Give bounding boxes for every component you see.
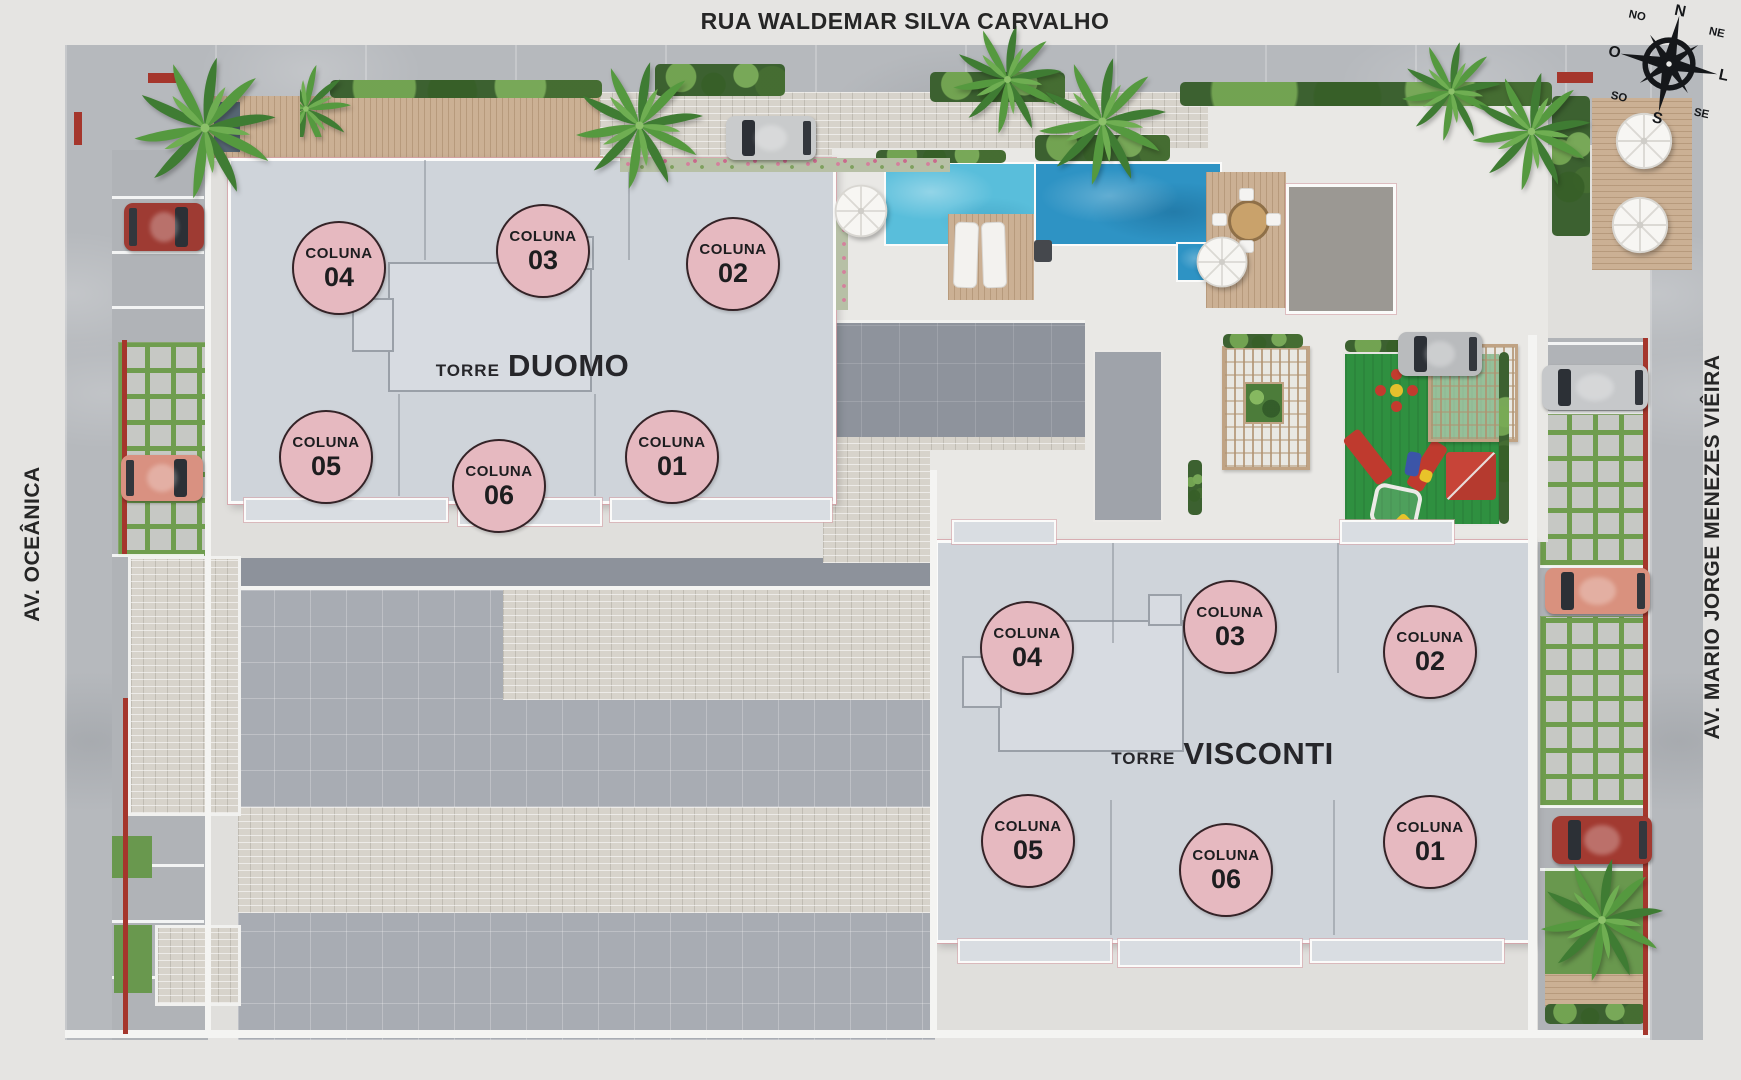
grass-pavers-left xyxy=(118,342,208,556)
visconti-coluna-04: COLUNA 04 xyxy=(980,601,1074,695)
umbrella-pool-icon xyxy=(832,182,890,240)
duomo-coluna-01: COLUNA 01 xyxy=(625,410,719,504)
visconti-core-step xyxy=(1148,594,1182,626)
hedge-right-bottom xyxy=(1545,1004,1645,1024)
duomo-balcony xyxy=(244,498,448,522)
coluna-number: 05 xyxy=(1013,837,1043,864)
site-plan: COLUNA 04 COLUNA 03 COLUNA 02 COLUNA 05 … xyxy=(0,0,1741,1080)
visconti-balcony xyxy=(958,939,1112,963)
visconti-coluna-03: COLUNA 03 xyxy=(1183,580,1277,674)
duomo-coluna-05: COLUNA 05 xyxy=(279,410,373,504)
duomo-coluna-02: COLUNA 02 xyxy=(686,217,780,311)
coluna-label: COLUNA xyxy=(1196,604,1263,621)
parking-stall-line xyxy=(1540,805,1644,808)
dining-chair xyxy=(1212,213,1227,226)
car-red-left xyxy=(124,203,204,251)
visconti-unit-divider xyxy=(1112,543,1114,643)
grass-pavers-right-upper xyxy=(1540,414,1646,566)
green-patch-left-a xyxy=(112,836,152,878)
car-silver-right xyxy=(1542,365,1648,410)
visconti-balcony xyxy=(1310,939,1504,963)
coluna-label: COLUNA xyxy=(994,818,1061,835)
duomo-unit-divider xyxy=(594,394,596,496)
palm-tree-icon xyxy=(1035,54,1170,189)
lot-wall-left xyxy=(205,148,211,1038)
parking-stall-line xyxy=(1540,411,1644,414)
tower-name: VISCONTI xyxy=(1183,736,1333,772)
hedge-playground-right xyxy=(1499,352,1509,524)
street-label-right: AV. MARIO JORGE MENEZES VIÊIRA xyxy=(1701,347,1725,747)
coluna-label: COLUNA xyxy=(993,625,1060,642)
duomo-title: TORRE DUOMO xyxy=(400,348,665,384)
coluna-label: COLUNA xyxy=(1192,847,1259,864)
lot-wall-bottom xyxy=(65,1030,1650,1038)
compass-ne: NE xyxy=(1708,25,1726,40)
dining-chair xyxy=(1239,188,1254,201)
lot-wall-visconti xyxy=(930,470,937,1038)
sun-lounger xyxy=(981,222,1007,289)
coluna-label: COLUNA xyxy=(699,241,766,258)
coluna-number: 03 xyxy=(1215,623,1245,650)
car-silver-entrance xyxy=(726,116,816,160)
parking-stall-line xyxy=(112,251,204,254)
coluna-number: 01 xyxy=(657,453,687,480)
pergola-planter xyxy=(1244,382,1284,424)
hedge-pergola-top xyxy=(1223,334,1303,348)
duomo-coluna-03: COLUNA 03 xyxy=(496,204,590,298)
tower-prefix: TORRE xyxy=(1111,749,1175,769)
coluna-label: COLUNA xyxy=(305,245,372,262)
compass-no: NO xyxy=(1628,8,1647,23)
coluna-number: 06 xyxy=(484,482,514,509)
parking-stall-line xyxy=(1540,342,1644,345)
grass-pavers-right-lower xyxy=(1540,616,1646,806)
visconti-unit-divider xyxy=(1110,800,1112,935)
car-salmon-left xyxy=(121,455,203,501)
sun-lounger xyxy=(953,222,979,289)
umbrella-terrace-icon xyxy=(1609,194,1671,256)
dining-chair xyxy=(1266,213,1281,226)
yard-cobble-drive xyxy=(503,590,935,700)
palm-tree-icon xyxy=(300,42,395,137)
coluna-number: 02 xyxy=(718,260,748,287)
duomo-coluna-04: COLUNA 04 xyxy=(292,221,386,315)
utility-block xyxy=(1093,350,1163,522)
visconti-balcony xyxy=(1118,939,1302,967)
compass-rose: N NE L SE S SO O NO xyxy=(1598,0,1740,128)
cobble-square-left xyxy=(155,925,241,1006)
low-roof-band xyxy=(823,320,1092,440)
duomo-balcony xyxy=(610,498,832,522)
compass-l: L xyxy=(1717,66,1730,85)
coluna-label: COLUNA xyxy=(638,434,705,451)
coluna-number: 03 xyxy=(528,247,558,274)
coluna-label: COLUNA xyxy=(1396,629,1463,646)
visconti-coluna-02: COLUNA 02 xyxy=(1383,605,1477,699)
coluna-label: COLUNA xyxy=(509,228,576,245)
coluna-label: COLUNA xyxy=(1396,819,1463,836)
duomo-coluna-06: COLUNA 06 xyxy=(452,439,546,533)
compass-se: SE xyxy=(1693,106,1711,121)
duomo-unit-divider xyxy=(398,394,400,496)
boundary-line-left-b xyxy=(123,698,128,1034)
car-salmon-right xyxy=(1545,568,1650,614)
parking-stall-line xyxy=(112,306,204,309)
palm-tree-icon xyxy=(1537,855,1667,985)
coluna-number: 06 xyxy=(1211,866,1241,893)
street-label-top: RUA WALDEMAR SILVA CARVALHO xyxy=(605,8,1205,35)
curb-mark xyxy=(74,112,82,145)
playground-sandbox xyxy=(1446,452,1496,500)
playground-table xyxy=(1390,384,1403,397)
street-label-left: AV. OCEÂNICA xyxy=(21,449,45,639)
umbrella-dining-icon xyxy=(1194,234,1250,290)
visconti-roof-block xyxy=(952,520,1056,544)
palm-tree-icon xyxy=(572,58,707,193)
visconti-coluna-01: COLUNA 01 xyxy=(1383,795,1477,889)
coluna-number: 01 xyxy=(1415,838,1445,865)
car-gray-garage xyxy=(1398,332,1482,376)
coluna-label: COLUNA xyxy=(292,434,359,451)
palm-tree-icon xyxy=(1469,69,1594,194)
visconti-coluna-06: COLUNA 06 xyxy=(1179,823,1273,917)
sidewalk-left xyxy=(65,45,112,1040)
coluna-number: 04 xyxy=(1012,644,1042,671)
compass-s: S xyxy=(1651,109,1665,128)
pool-grill xyxy=(1034,240,1052,262)
tower-prefix: TORRE xyxy=(436,361,500,381)
compass-n: N xyxy=(1673,2,1688,21)
visconti-unit-divider xyxy=(1337,543,1339,673)
boundary-line-left-a xyxy=(122,340,127,554)
visconti-roof-block xyxy=(1340,520,1454,544)
green-patch-left-b xyxy=(114,925,152,993)
palm-tree-icon xyxy=(130,53,280,203)
cobble-strip-left xyxy=(128,556,241,816)
coluna-number: 02 xyxy=(1415,648,1445,675)
compass-o: O xyxy=(1607,43,1622,62)
coluna-number: 04 xyxy=(324,264,354,291)
visconti-coluna-05: COLUNA 05 xyxy=(981,794,1075,888)
pavilion-roof xyxy=(1286,184,1396,314)
yard-cobble-band xyxy=(238,807,935,913)
hedge-garden-left xyxy=(1188,460,1202,515)
visconti-title: TORRE VISCONTI xyxy=(1090,736,1355,772)
duomo-unit-divider xyxy=(424,160,426,260)
tower-name: DUOMO xyxy=(508,348,629,384)
lot-wall-right xyxy=(1528,335,1537,1038)
compass-so: SO xyxy=(1610,90,1629,105)
yard-paving-lower xyxy=(238,913,935,1040)
coluna-number: 05 xyxy=(311,453,341,480)
visconti-unit-divider xyxy=(1333,800,1335,935)
coluna-label: COLUNA xyxy=(465,463,532,480)
